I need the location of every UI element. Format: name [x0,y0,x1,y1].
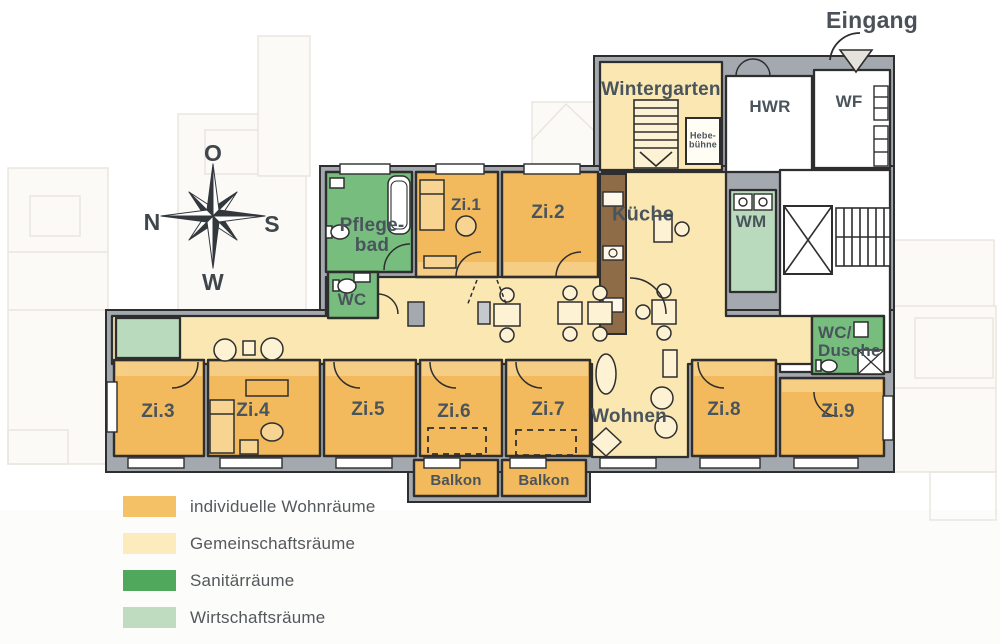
legend-row-individual: individuelle Wohnräume [123,496,376,517]
legend-swatch-individual [123,496,176,517]
elevator-icon [784,206,832,274]
room-label-balkon-left: Balkon [430,473,481,489]
legend-swatch-sanitary [123,570,176,591]
floorplan-page: Eingang Wintergarten Hebe-bühne HWR WF K… [0,0,1000,644]
legend-label-utility: Wirtschaftsräume [190,608,325,628]
compass-label-east: O [204,141,222,165]
room-label-wintergarten: Wintergarten [601,80,720,100]
legend-label-sanitary: Sanitärräume [190,571,294,591]
compass-label-west: W [202,270,224,294]
compass-label-north: N [144,210,161,234]
room-label-wm: WM [736,213,767,231]
room-label-zi6: Zi.6 [437,402,471,422]
legend-swatch-community [123,533,176,554]
room-label-zi1: Zi.1 [451,196,481,214]
legend-label-individual: individuelle Wohnräume [190,497,376,517]
entrance-label: Eingang [826,8,918,32]
legend-row-sanitary: Sanitärräume [123,570,376,591]
room-label-hebebuehne: Hebe-bühne [685,132,721,151]
room-label-zi3: Zi.3 [141,402,175,422]
room-label-wc: WC [338,291,367,309]
room-label-balkon-right: Balkon [518,473,569,489]
stairs-wintergarten-icon [634,100,678,168]
room-label-pflegebad: Pflege-bad [332,216,412,256]
room-label-zi7: Zi.7 [531,400,565,420]
bed-icon [420,180,444,230]
room-label-kueche: Küche [612,205,674,226]
compass-label-south: S [264,212,280,236]
room-label-zi9: Zi.9 [821,402,855,422]
stairs-entry-icon [836,208,890,266]
bed-icon [210,400,234,453]
room-label-zi5: Zi.5 [351,400,385,420]
room-label-wc-dusche: WC/ Dusche [818,324,888,360]
legend: individuelle Wohnräume Gemeinschaftsräum… [123,496,376,628]
room-hwr [726,76,812,172]
radiator-icon [874,86,888,166]
plant-icon [596,354,616,394]
legend-row-utility: Wirtschaftsräume [123,607,376,628]
room-label-zi4: Zi.4 [236,401,270,421]
room-utility-west [116,318,180,358]
room-zi2 [502,172,598,277]
room-label-hwr: HWR [749,98,790,116]
room-label-wf: WF [836,93,863,111]
legend-label-community: Gemeinschaftsräume [190,534,355,554]
legend-swatch-utility [123,607,176,628]
room-label-zi8: Zi.8 [707,400,741,420]
room-label-zi2: Zi.2 [531,203,565,223]
room-label-wohnen: Wohnen [591,407,667,427]
legend-row-community: Gemeinschaftsräume [123,533,376,554]
toilet-icon [821,360,837,372]
